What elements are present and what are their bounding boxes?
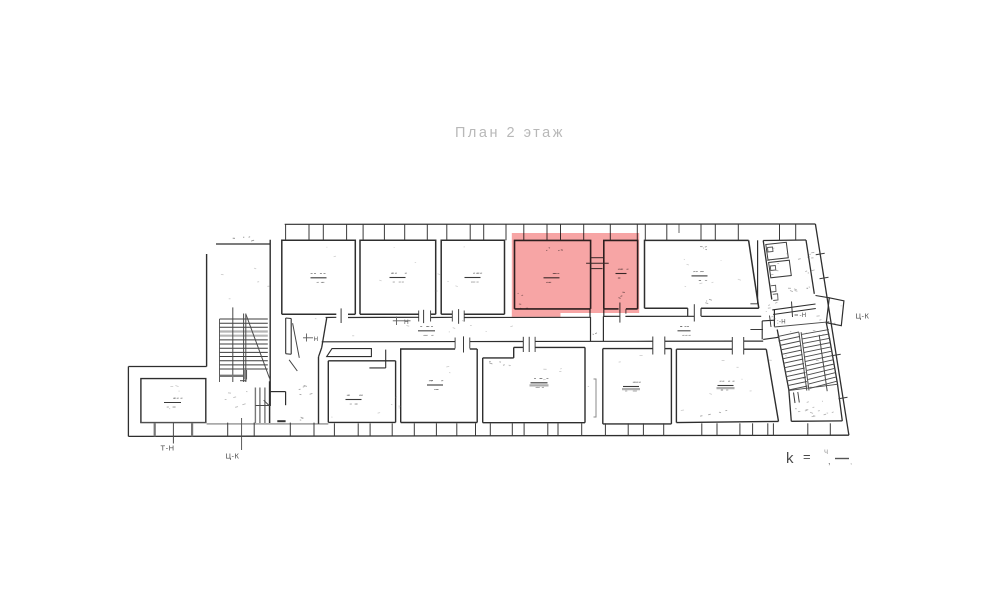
svg-text:Ц-К: Ц-К: [226, 452, 240, 461]
svg-text:Т-Н: Т-Н: [161, 444, 175, 453]
svg-text:k: k: [786, 450, 794, 467]
svg-text:,: ,: [828, 456, 831, 466]
svg-text:=: =: [803, 449, 811, 464]
svg-text:,: ,: [850, 457, 852, 466]
svg-text:План 2 этаж: План 2 этаж: [455, 125, 565, 141]
svg-text::-Н: :-Н: [777, 320, 786, 326]
svg-text:Ц-К: Ц-К: [856, 312, 870, 321]
svg-text:Н: Н: [404, 319, 409, 326]
svg-text:ч: ч: [824, 447, 828, 456]
svg-text:-Н: -Н: [800, 313, 807, 319]
